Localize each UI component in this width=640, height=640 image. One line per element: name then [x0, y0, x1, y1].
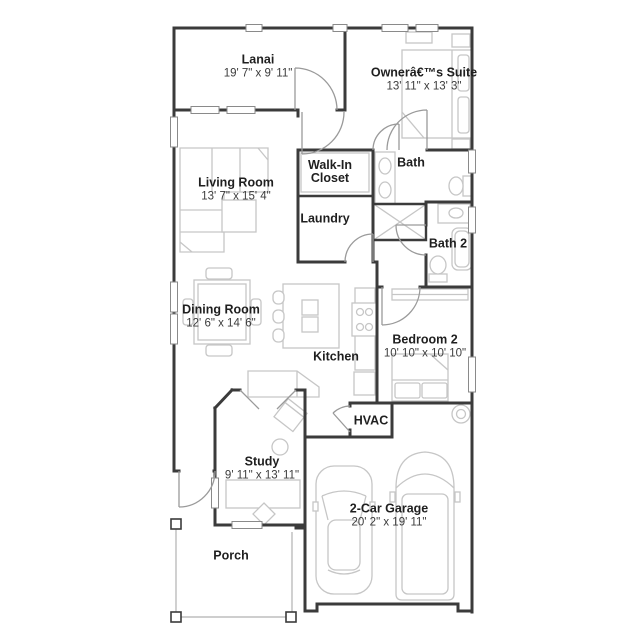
nightstand [452, 34, 470, 47]
water-heater [452, 405, 470, 423]
owners-suite-bed [402, 32, 472, 149]
pillow [458, 97, 469, 133]
porch-outline [176, 524, 292, 617]
bath-vanity [375, 152, 395, 204]
bedroom2-bed [392, 354, 448, 401]
pillow [422, 383, 447, 398]
dining-table [183, 268, 261, 356]
stove [352, 303, 377, 336]
laundry-door [345, 234, 373, 262]
armchair [274, 399, 307, 432]
furniture-layer [180, 32, 472, 600]
hvac-door [333, 406, 350, 432]
porch-post [171, 612, 181, 622]
floorplan-drawing [0, 0, 640, 640]
fridge [354, 372, 375, 395]
dresser [406, 32, 432, 43]
bath2-toilet [429, 274, 447, 282]
bath2-fixtures [429, 204, 472, 282]
study-desk [226, 399, 307, 525]
car-sedan [313, 466, 375, 594]
hall-door [302, 112, 344, 154]
porch-post [286, 612, 296, 622]
porch-posts [171, 519, 296, 622]
car-suv [390, 452, 460, 600]
shower [375, 205, 425, 239]
floorplan-page: Lanai 19' 7" x 9' 11" Ownerâ€™s Suite 13… [0, 0, 640, 640]
front-door [179, 471, 215, 507]
side-table [272, 439, 288, 455]
bath-toilet [449, 176, 472, 196]
bath-door [373, 124, 399, 150]
lanai-door [295, 68, 337, 110]
closet-shelf [301, 153, 369, 192]
kitchen-island [273, 284, 339, 348]
porch-post [171, 519, 181, 529]
sofa [180, 148, 268, 252]
pillow [395, 383, 420, 398]
nightstand [452, 139, 470, 149]
ottoman [222, 200, 256, 232]
bedroom2-closet [392, 289, 468, 300]
pillow [458, 55, 469, 91]
